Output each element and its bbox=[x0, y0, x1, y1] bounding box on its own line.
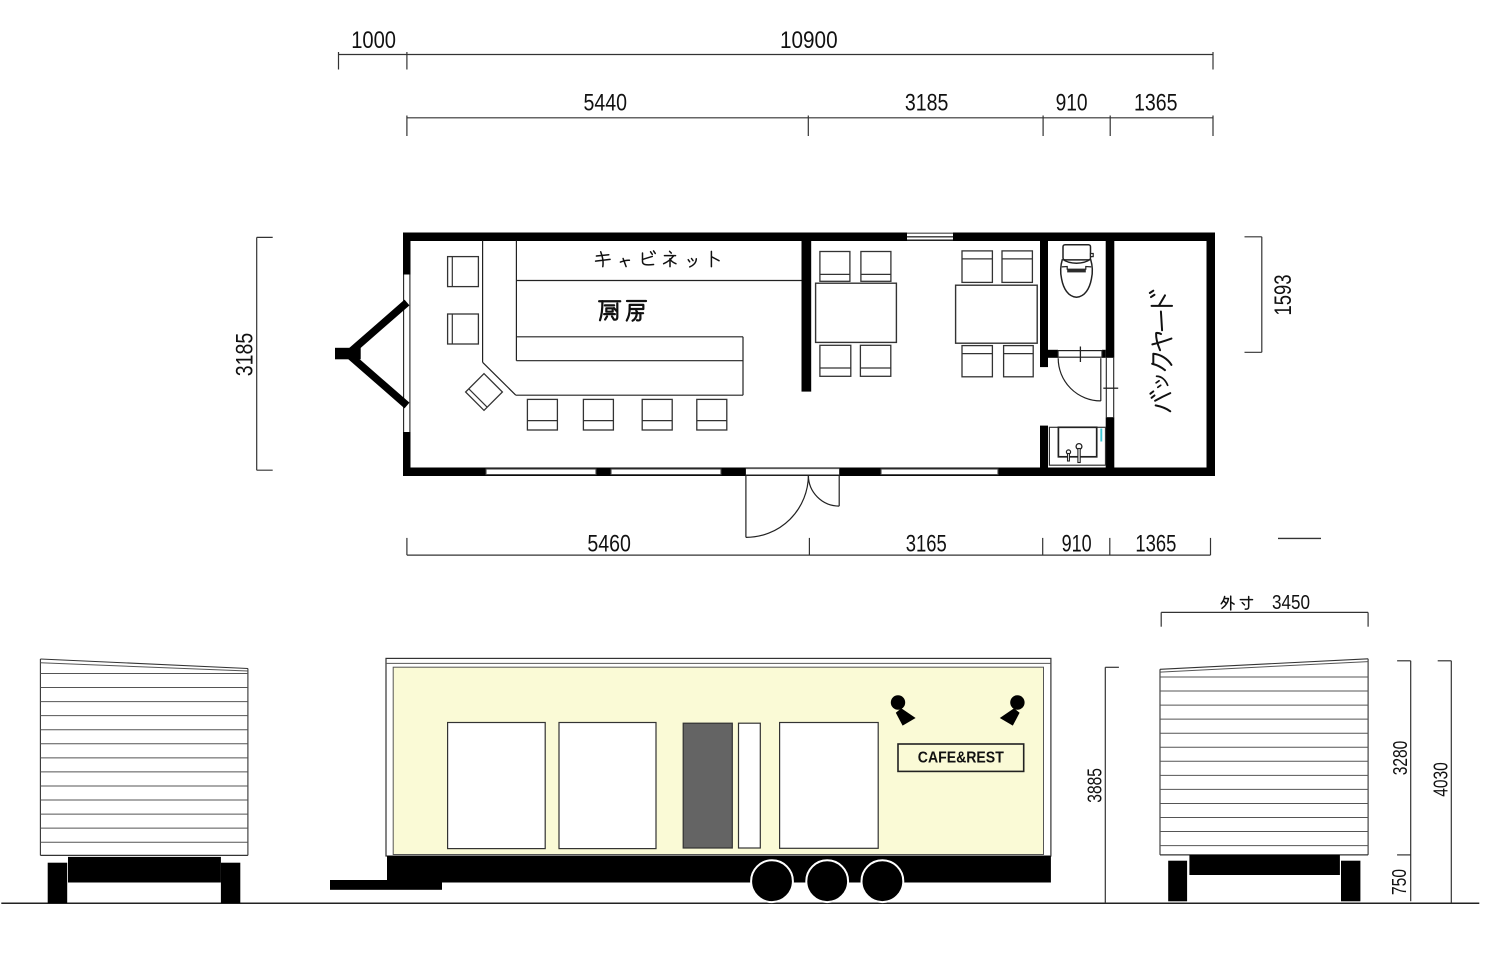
svg-text:3280: 3280 bbox=[1390, 741, 1412, 776]
svg-text:1365: 1365 bbox=[1134, 90, 1178, 117]
svg-text:1365: 1365 bbox=[1135, 531, 1176, 558]
svg-text:1593: 1593 bbox=[1270, 275, 1297, 316]
svg-text:910: 910 bbox=[1062, 531, 1092, 558]
svg-text:3885: 3885 bbox=[1085, 768, 1107, 803]
svg-text:4030: 4030 bbox=[1431, 762, 1453, 797]
svg-text:750: 750 bbox=[1389, 869, 1411, 895]
svg-text:1000: 1000 bbox=[351, 27, 396, 54]
svg-text:3185: 3185 bbox=[232, 333, 259, 377]
svg-text:CAFE&REST: CAFE&REST bbox=[918, 750, 1004, 767]
svg-text:10900: 10900 bbox=[780, 27, 838, 54]
svg-text:3165: 3165 bbox=[906, 531, 947, 558]
svg-text:910: 910 bbox=[1056, 90, 1088, 117]
svg-text:5460: 5460 bbox=[587, 531, 631, 558]
svg-text:5440: 5440 bbox=[584, 90, 628, 117]
svg-text:3185: 3185 bbox=[905, 90, 949, 117]
svg-text:3450: 3450 bbox=[1272, 592, 1310, 614]
